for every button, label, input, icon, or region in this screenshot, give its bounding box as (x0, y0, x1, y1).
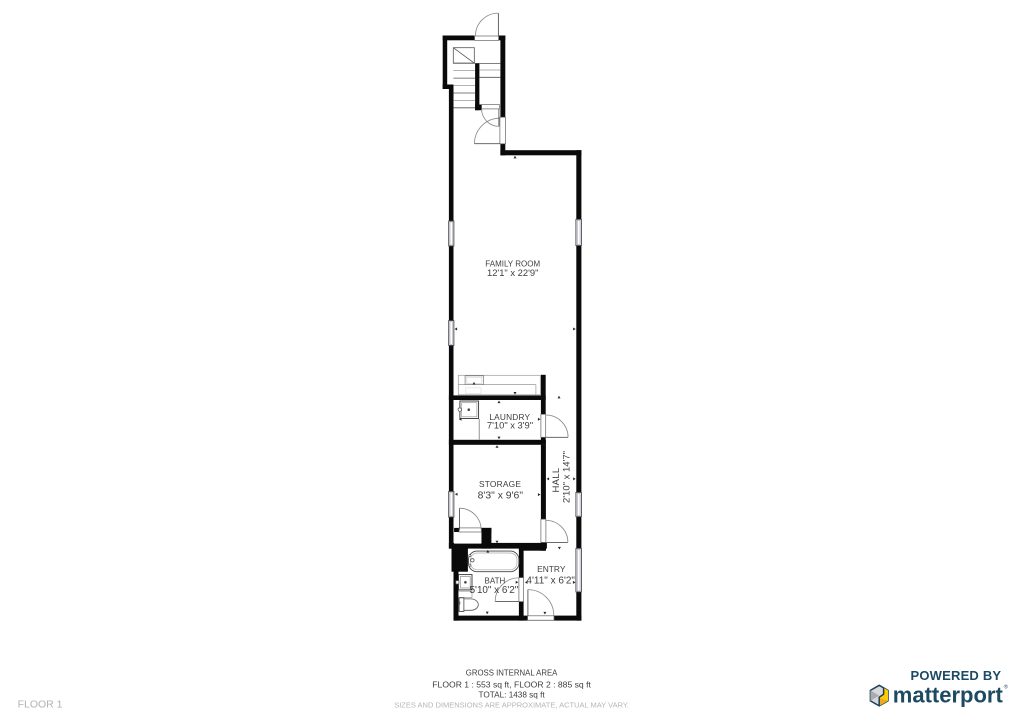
svg-text:TOTAL: 1438 sq ft: TOTAL: 1438 sq ft (479, 690, 546, 699)
svg-text:FLOOR 1: FLOOR 1 (18, 699, 63, 711)
svg-text:2'10" x 14'7": 2'10" x 14'7" (561, 451, 572, 503)
svg-text:ENTRY: ENTRY (537, 564, 566, 574)
svg-text:12'1" x 22'9": 12'1" x 22'9" (487, 267, 538, 278)
svg-text:8'3" x 9'6": 8'3" x 9'6" (478, 491, 524, 502)
svg-text:SIZES AND DIMENSIONS ARE APPRO: SIZES AND DIMENSIONS ARE APPROXIMATE, AC… (394, 700, 629, 709)
svg-text:4'11" x 6'2": 4'11" x 6'2" (526, 575, 575, 586)
svg-text:GROSS INTERNAL AREA: GROSS INTERNAL AREA (466, 668, 558, 677)
svg-text:7'10" x 3'9": 7'10" x 3'9" (487, 419, 533, 430)
svg-text:5'10" x 6'2": 5'10" x 6'2" (470, 585, 519, 596)
svg-text:FLOOR 1 : 553 sq ft, FLOOR 2 :: FLOOR 1 : 553 sq ft, FLOOR 2 : 885 sq ft (432, 679, 591, 689)
svg-text:®: ® (1004, 684, 1008, 691)
svg-text:STORAGE: STORAGE (479, 479, 521, 489)
svg-text:POWERED BY: POWERED BY (910, 668, 1001, 683)
svg-text:matterport: matterport (893, 683, 1004, 708)
